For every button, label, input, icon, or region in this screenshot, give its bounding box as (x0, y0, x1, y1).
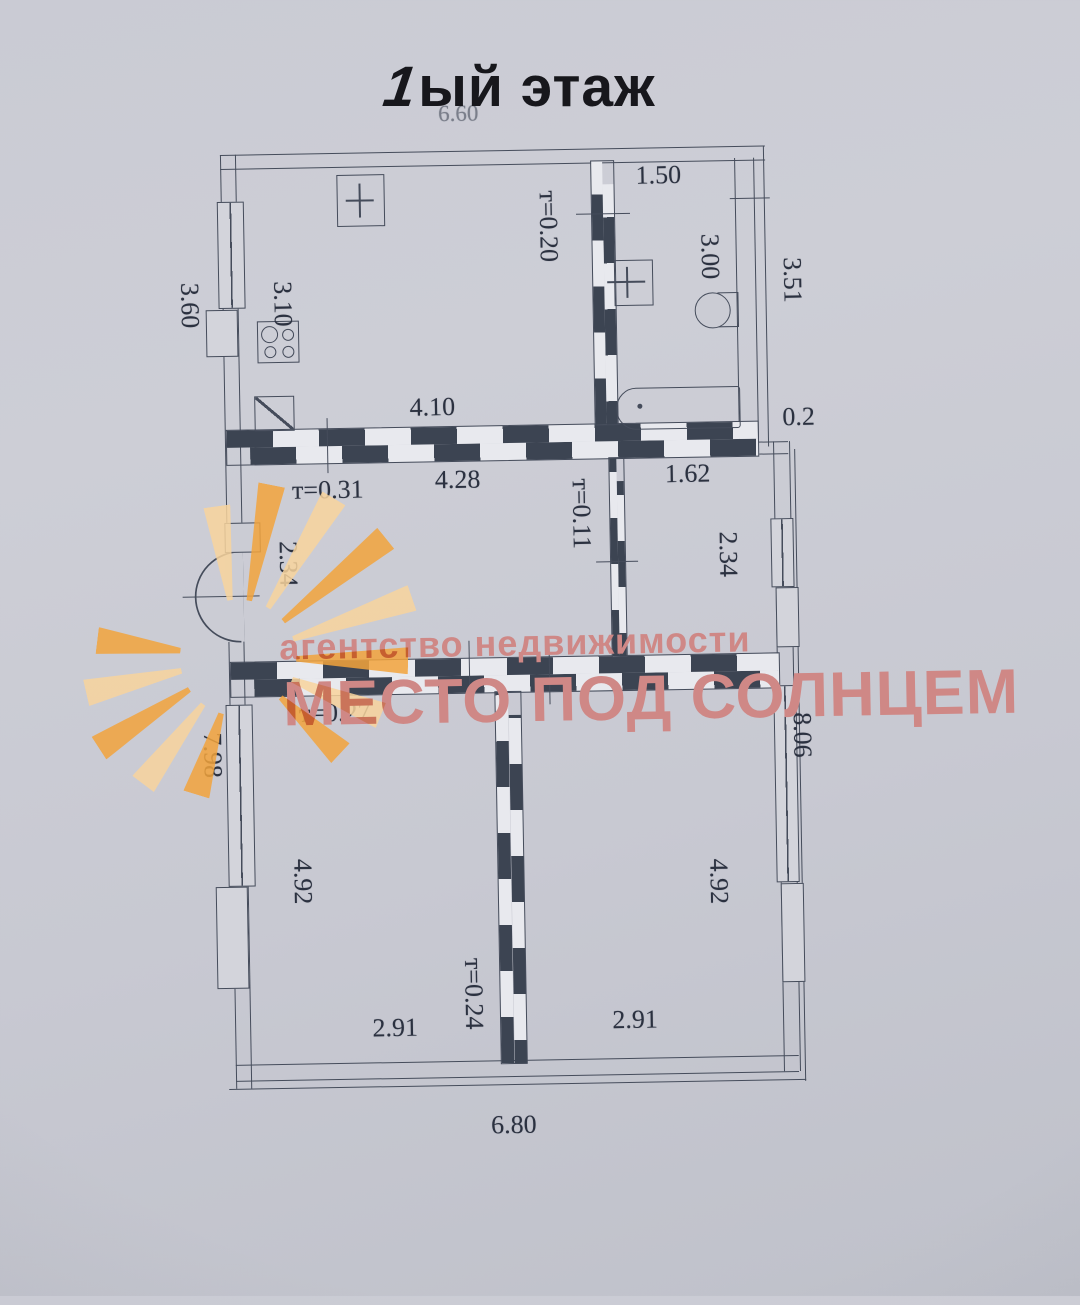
dim-kitchen-width: 4.10 (409, 392, 455, 423)
dim-right-top-height: 3.51 (777, 257, 808, 303)
dim-kitchen-height-outer: 3.60 (174, 283, 205, 329)
floor-plan: 6.60 1.50 4.10 0.2 т=0.31 4.28 1.62 т=0.… (217, 135, 803, 1095)
window-smallroom-right (770, 518, 794, 587)
dim-hall-width: 4.28 (435, 464, 481, 495)
stove-burner-1 (261, 326, 278, 343)
niche-smallroom-right (776, 587, 800, 647)
window-kitchen-left (217, 202, 246, 309)
sun-logo-icon (0, 0, 1069, 10)
outline-bottom (229, 1079, 806, 1090)
wall-between-rooms (494, 691, 528, 1064)
niche-room-left (216, 887, 250, 990)
dim-room-right-height: 4.92 (703, 858, 734, 904)
dim-hall-height: 2.34 (273, 541, 304, 587)
niche-kitchen-left (206, 310, 239, 358)
entrance-niche-box (224, 522, 261, 553)
bathtub-icon (616, 386, 741, 430)
corner-cabinet-icon (254, 396, 295, 432)
dim-wall-t020: т=0.20 (533, 190, 564, 262)
dim-bathroom-height: 3.00 (694, 233, 725, 279)
dim-bathroom-width: 1.50 (635, 160, 681, 191)
line-outer-right-top (763, 146, 769, 446)
window-room-left (226, 705, 256, 887)
dim-room-left-width: 2.91 (372, 1013, 418, 1044)
wall-outer-top (220, 145, 765, 170)
dim-wall-t027: т=0.27 (299, 697, 371, 728)
stove-burner-3 (264, 346, 276, 358)
bathroom-sink-cross-h (607, 281, 645, 284)
title-floor-number: 1 (380, 54, 422, 120)
stove-burner-2 (282, 329, 294, 341)
dim-left-bottom-height: 7.98 (197, 732, 228, 778)
dim-room-right-width: 2.91 (612, 1004, 658, 1035)
wall-hall-smallroom (608, 457, 627, 657)
niche-room-right (781, 883, 806, 982)
dim-room-left-height: 4.92 (287, 859, 318, 905)
dim-wall-t011: т=0.11 (566, 478, 597, 549)
dim-smallroom-width: 1.62 (665, 458, 711, 489)
wall-jog-right (757, 441, 788, 455)
sun-ray-icon (83, 658, 185, 706)
bathtub-drain (637, 404, 642, 409)
dim-right-jog: 0.2 (782, 402, 815, 433)
kitchen-sink-icon (336, 174, 385, 227)
sun-ray-icon (96, 627, 183, 664)
dim-kitchen-height-inner: 3.10 (267, 281, 298, 327)
sun-ray-icon (92, 678, 197, 759)
dim-wall-t024: т=0.24 (458, 958, 489, 1030)
dim-bottom-width: 6.80 (491, 1110, 537, 1141)
bathroom-sink-icon (614, 259, 654, 306)
page-title: 1ый этаж (355, 52, 685, 122)
dim-wall-t031: т=0.31 (292, 475, 364, 506)
dim-right-bottom-height: 8.06 (787, 712, 818, 758)
stove-burner-4 (282, 346, 294, 358)
title-floor-text: ый этаж (418, 54, 655, 120)
kitchen-sink-cross-h (346, 199, 374, 201)
dim-smallroom-height: 2.34 (713, 531, 744, 577)
